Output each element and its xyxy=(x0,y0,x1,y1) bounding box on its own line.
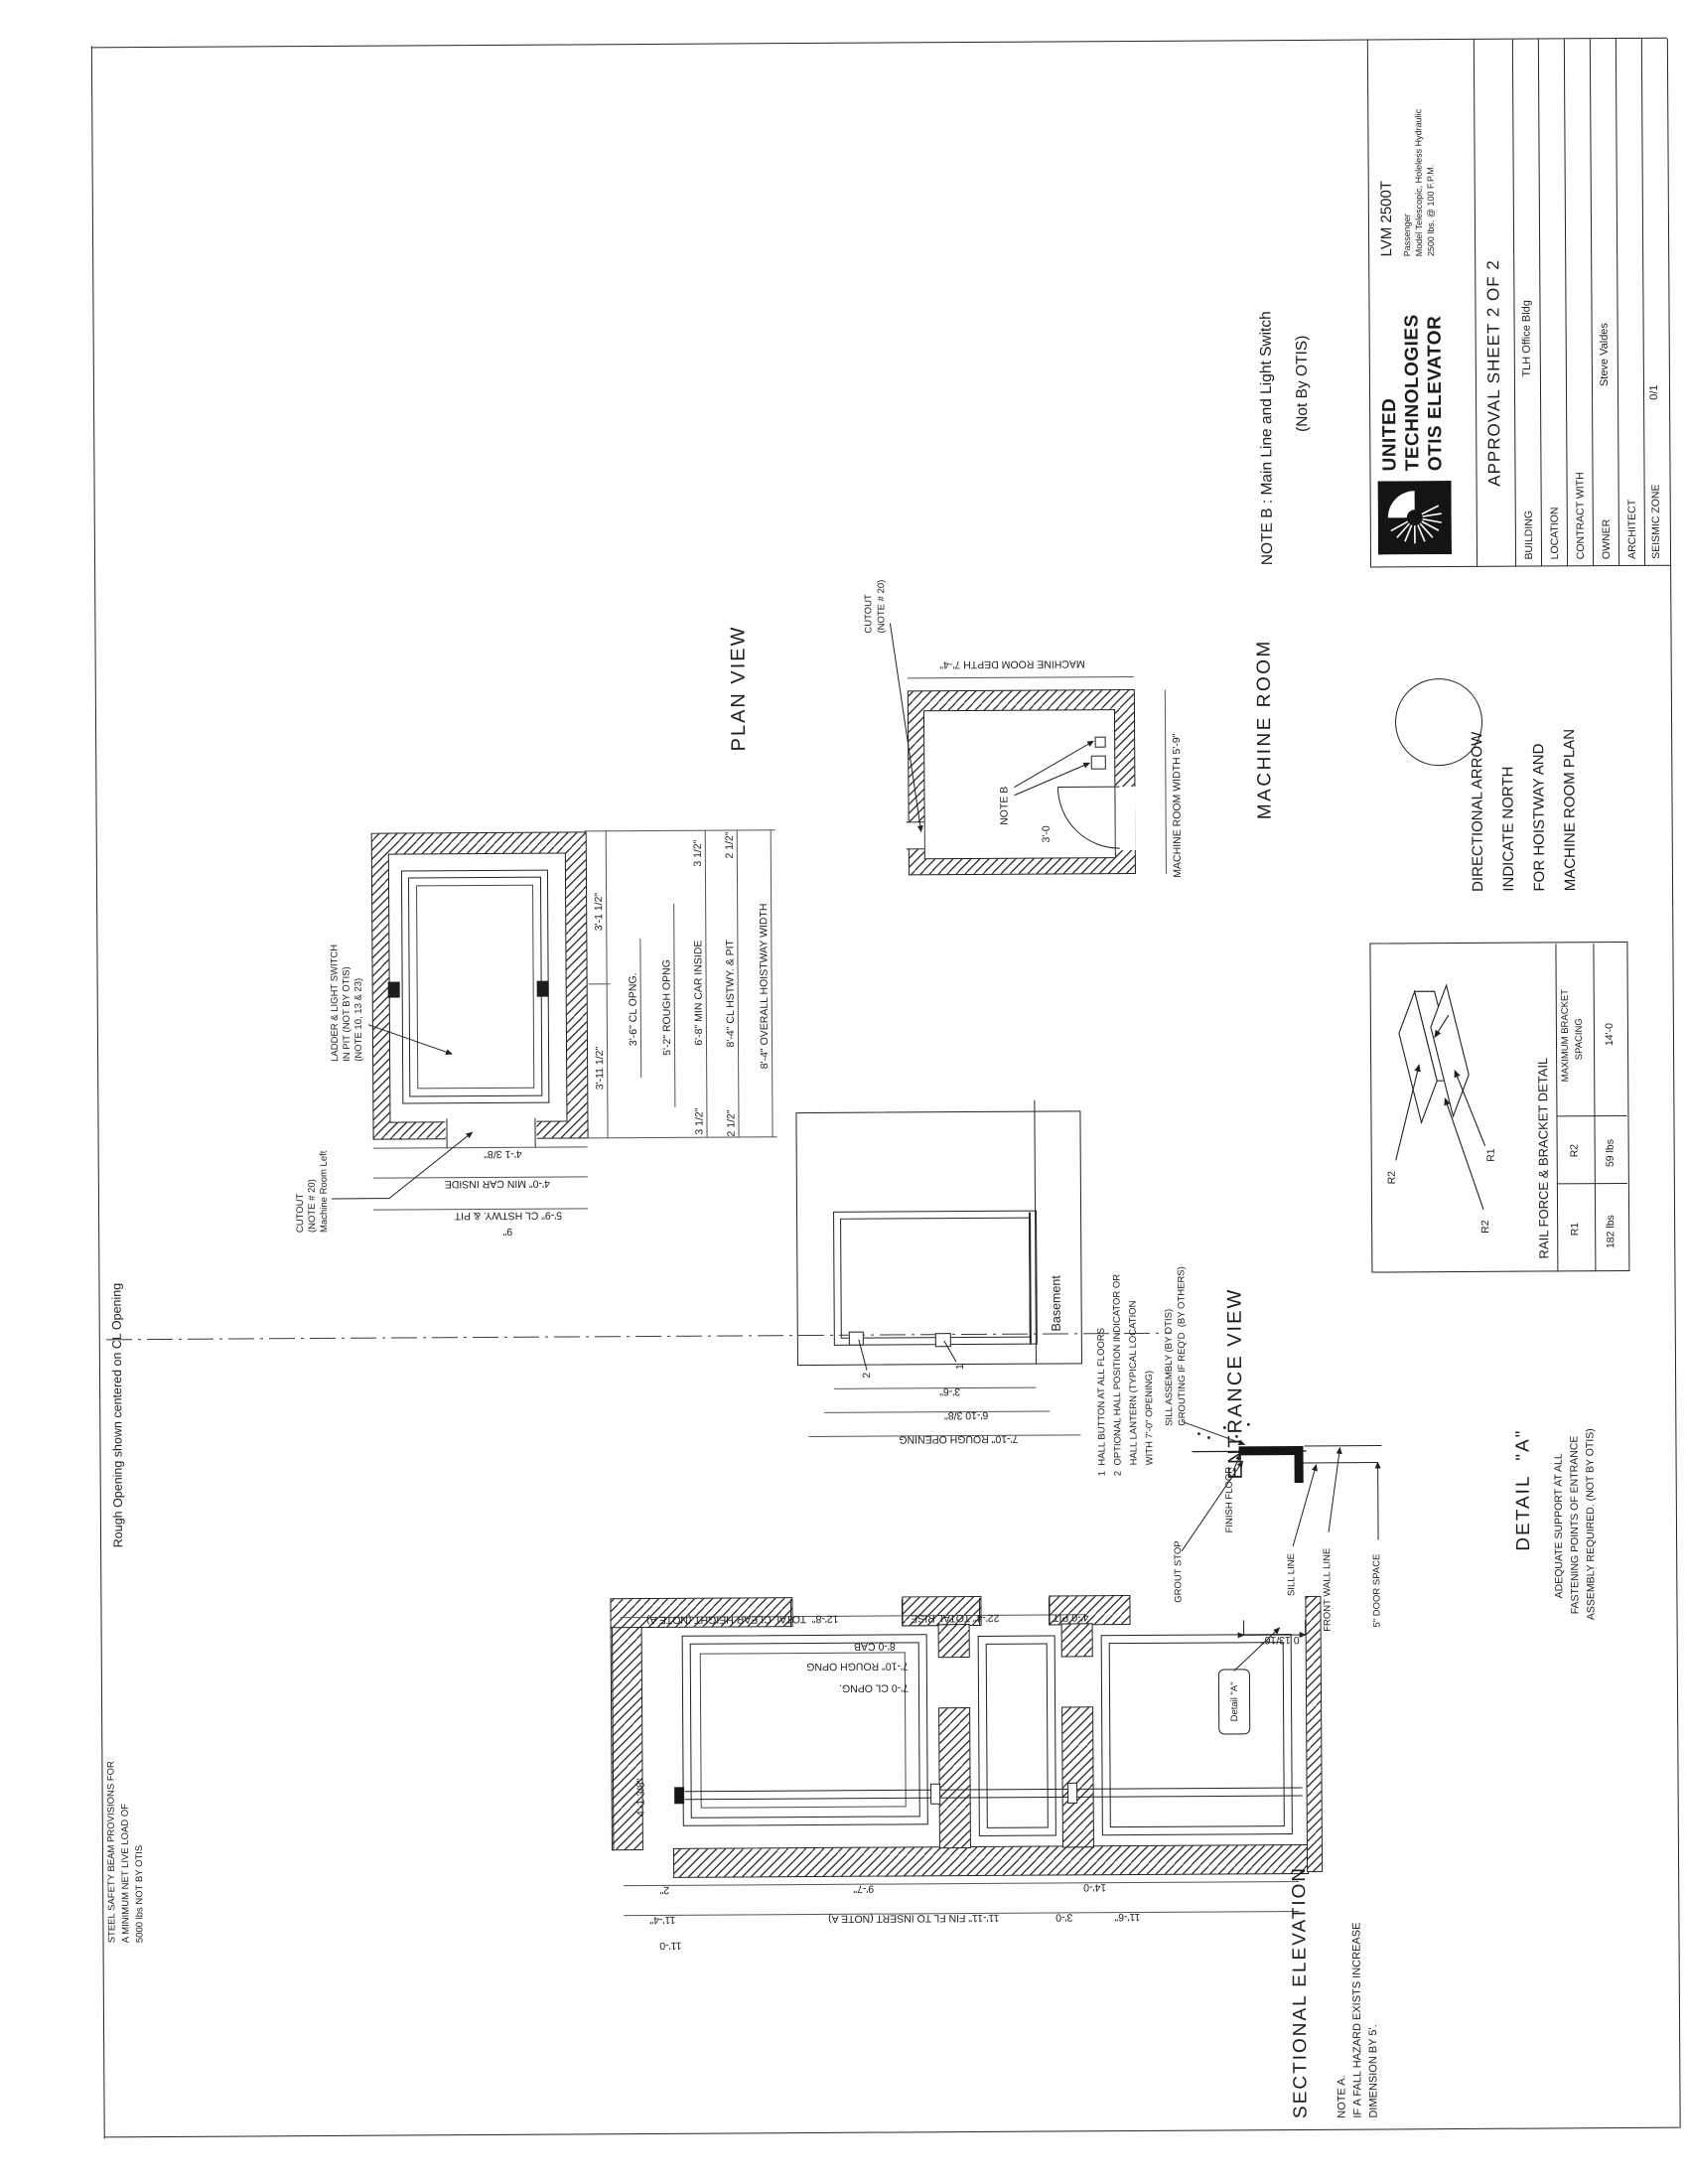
rail-value-spacing: 14'-0 xyxy=(1604,1023,1616,1046)
detail-note-1: ADEQUATE SUPPORT AT ALL xyxy=(1553,1453,1566,1598)
section-ldimline-1 xyxy=(624,1881,1299,1886)
section-dim-clopng: 7'-0 CL OPNG. xyxy=(839,1681,909,1693)
entrance-note-3: HALL LANTERN (TYPICAL LOCATION xyxy=(1129,1300,1141,1476)
detail-sill-line: SILL LINE xyxy=(1287,1553,1298,1596)
plan-cutout-line1: CUTOUT xyxy=(296,1194,307,1233)
direction-note-line1: DIRECTIONAL ARROW xyxy=(1469,732,1486,892)
note-b-line2: (Not By OTIS) xyxy=(1294,336,1312,432)
section-dim-30: 3'-0 xyxy=(1055,1911,1072,1923)
row-owner-label: OWNER xyxy=(1601,519,1613,559)
machine-room-cutout-notch xyxy=(907,821,924,849)
model-name: LVM 2500T xyxy=(1378,181,1396,257)
plan-dim-3-1: 3'-1 1/2" xyxy=(593,893,605,931)
mr-door-dim: 3'-0 xyxy=(1041,825,1053,842)
section-dim-pit: 4'-0 PIT xyxy=(1053,1611,1089,1623)
plan-extline-r xyxy=(585,829,775,831)
section-floor-slab-1-stub xyxy=(938,1624,970,1658)
section-title: SECTIONAL ELEVATION xyxy=(1289,1866,1312,2118)
scanned-drawing-page: STEEL SAFETY BEAM PROVISIONS FOR A MINIM… xyxy=(0,0,1688,2184)
rail-label-r2-left: R2 xyxy=(1479,1220,1491,1234)
rail-header-spacing2: SPACING xyxy=(1575,1018,1586,1060)
section-landing-2-inner xyxy=(986,1644,1049,1828)
section-detail-tag: Detail "A" xyxy=(1218,1669,1250,1734)
mr-depth-dimline xyxy=(908,676,1134,678)
mr-width-dimline xyxy=(1165,690,1167,874)
section-dim-cab: 8'-0 CAB xyxy=(854,1640,896,1652)
plan-rail-bottom xyxy=(537,981,549,997)
section-dim-114: 11'-4" xyxy=(649,1914,675,1926)
section-landing-3-inner xyxy=(1109,1642,1285,1827)
rail-header-r2: R2 xyxy=(1569,1144,1581,1158)
plan-dimline-2 xyxy=(639,939,641,1078)
ladder-note-line3: (NOTE 10, 13 & 23) xyxy=(354,978,365,1062)
sheet-title: APPROVAL SHEET 2 OF 2 xyxy=(1483,259,1504,487)
machine-room-wall xyxy=(908,689,1136,875)
plan-dim-3half-r: 3 1/2" xyxy=(692,840,704,867)
hall-button-box xyxy=(935,1333,951,1347)
direction-note-line4: MACHINE ROOM PLAN xyxy=(1561,729,1579,891)
section-overhead-slab xyxy=(611,1626,643,1850)
plan-extline-l xyxy=(587,1136,777,1138)
section-pit-floor xyxy=(1305,1596,1323,1872)
row-location-label: LOCATION xyxy=(1549,507,1561,559)
otis-logo xyxy=(1378,481,1452,554)
plan-dim-clhstwypit: 5'-9" CL HSTWY. & PIT xyxy=(455,1209,563,1222)
beam-note-line1: STEEL SAFETY BEAM PROVISIONS FOR xyxy=(106,1761,118,1943)
entrance-dimline-2 xyxy=(824,1411,1050,1413)
machine-room-door-gap xyxy=(1115,787,1135,850)
rail-header-spacing1: MAXIMUM BRACKET xyxy=(1561,989,1572,1083)
company-line2: TECHNOLOGIES xyxy=(1402,314,1425,471)
mr-note-b: NOTE B xyxy=(998,787,1010,825)
plan-cutout-line3: Machine Room Left xyxy=(320,1151,331,1233)
titleblock-row-line4 xyxy=(1616,39,1619,566)
section-dim-110: 11'-0 xyxy=(659,1940,681,1952)
entrance-view-title: ENTRANCE VIEW xyxy=(1224,1288,1248,1480)
plan-cab-line xyxy=(416,885,534,1090)
mr-cutout-line2: (NOTE # 20) xyxy=(877,580,888,634)
entrance-note-1: 1 HALL BUTTON AT ALL FLOORS xyxy=(1097,1328,1109,1476)
plan-dim-3half-l: 3 1/2" xyxy=(693,1108,705,1135)
model-sub1: Passenger xyxy=(1402,214,1413,256)
note-b-line1: NOTE B : Main Line and Light Switch xyxy=(1258,311,1277,565)
model-sub2: Model Telescopic, Holeless Hydraulic xyxy=(1413,109,1424,256)
rail-value-r2: 59 lbs xyxy=(1605,1139,1617,1167)
section-floor-slab-2 xyxy=(1061,1706,1094,1847)
rail-detail-title: RAIL FORCE & BRACKET DETAIL xyxy=(1536,1058,1552,1259)
plan-view-title: PLAN VIEW xyxy=(727,625,751,751)
detail-sill-label2: GROUTING IF REQ'D (BY OTHERS) xyxy=(1177,1266,1189,1426)
company-line3: OTIS ELEVATOR xyxy=(1425,316,1448,472)
rail-label-r1: R1 xyxy=(1485,1148,1497,1162)
section-note-a1: NOTE A. xyxy=(1336,2075,1348,2117)
machine-room-title: MACHINE ROOM xyxy=(1254,639,1277,819)
drawing-sheet: STEEL SAFETY BEAM PROVISIONS FOR A MINIM… xyxy=(0,0,1688,2184)
direction-note-line3: FOR HOISTWAY AND xyxy=(1530,744,1548,892)
detail-a-sketch xyxy=(1181,1420,1382,1635)
plan-entrance-gap xyxy=(445,1118,536,1143)
titleblock-line-2 xyxy=(1512,40,1516,567)
row-building-label: BUILDING xyxy=(1523,510,1535,560)
section-dim-roughopng: 7'-10" ROUGH OPNG xyxy=(806,1660,909,1673)
detail-sill-label1: SILL ASSEMBLY (BY OTIS) xyxy=(1165,1309,1177,1426)
titleblock-row-line2 xyxy=(1564,39,1568,566)
entrance-dim-710: 7'-10" ROUGH OPENING xyxy=(899,1433,1018,1446)
titleblock-left-border xyxy=(1370,565,1670,568)
row-seismic-value: 0/1 xyxy=(1648,384,1661,399)
section-dim-116: 11'-6" xyxy=(1114,1911,1140,1923)
rail-detail-box xyxy=(1369,942,1629,1273)
plan-dimline-6 xyxy=(771,829,774,1137)
titleblock-top-border xyxy=(1367,41,1371,568)
section-dim-97: 9'-7" xyxy=(853,1883,874,1895)
plan-sill-line-a xyxy=(446,1118,447,1148)
plan-dim-clhstwy: 8'-4" CL HSTWY. & PIT xyxy=(724,940,737,1048)
plan-extline-m xyxy=(589,983,611,984)
detail-note-3: ASSEMBLY REQUIRED. (NOT BY OTIS) xyxy=(1584,1428,1597,1620)
company-line1: UNITED xyxy=(1379,398,1401,472)
entrance-callout-1: 1 xyxy=(954,1364,966,1370)
section-dim-totalclear: 12'-8" TOTAL CLEAR HEIGHT (NOTE A) xyxy=(646,1613,839,1626)
plan-dimline-5 xyxy=(737,829,740,1137)
entrance-dimline-1 xyxy=(834,1387,1036,1389)
plan-rail-top xyxy=(388,982,400,998)
border-top xyxy=(91,46,105,2138)
model-sub3: 2500 lbs. @ 100 F.P.M. xyxy=(1426,165,1437,257)
plan-dim-2half-l: 2 1/2" xyxy=(725,1109,737,1136)
machine-room-interior xyxy=(923,709,1116,859)
detail-door-space: 5" DOOR SPACE xyxy=(1372,1554,1383,1628)
section-floor-slab-2-stub xyxy=(1061,1623,1093,1657)
mr-width-dim: MACHINE ROOM WIDTH 5'-9" xyxy=(1171,734,1184,878)
plan-dimline-3 xyxy=(673,904,675,1107)
row-building-value: TLH Office Bldg xyxy=(1520,300,1533,377)
plan-dimline-4 xyxy=(705,830,708,1138)
plan-dim-clopng: 3'-6" CL OPNG. xyxy=(628,972,640,1046)
rail-label-r2-top: R2 xyxy=(1386,1171,1398,1185)
section-note-a2: IF A FALL HAZARD EXISTS INCREASE xyxy=(1350,1923,1364,2118)
border-left xyxy=(104,2127,1680,2138)
entrance-floor-label: Basement xyxy=(1049,1275,1063,1331)
hall-lantern-box xyxy=(849,1332,864,1346)
section-note-a3: DIMENSION BY 5'. xyxy=(1367,2024,1380,2117)
section-back-wall xyxy=(673,1844,1309,1878)
detail-note-2: FASTENING POINTS OF ENTRANCE xyxy=(1568,1436,1581,1615)
titleblock-row-line1 xyxy=(1538,39,1542,566)
entrance-note-2: 2 OPTIONAL HALL POSITION INDICATOR OR xyxy=(1112,1274,1124,1476)
plan-cutout-line2: (NOTE # 20) xyxy=(308,1179,319,1233)
section-dim-2in: 2" xyxy=(660,1884,670,1896)
entrance-dim-36: 3'-6" xyxy=(939,1385,960,1397)
border-bottom xyxy=(1667,39,1681,2128)
row-owner-value: Steve Valdes xyxy=(1599,323,1612,386)
plan-dim-2half-r: 2 1/2" xyxy=(724,831,736,858)
plan-sill-line-b xyxy=(534,1118,535,1148)
detail-a-title: DETAIL "A" xyxy=(1512,1428,1535,1550)
section-dim-1111: 11'-11" FIN FL TO INSERT (NOTE A) xyxy=(828,1912,999,1925)
mr-cutout-line1: CUTOUT xyxy=(864,594,875,633)
section-cab xyxy=(700,1652,907,1808)
row-contract-label: CONTRACT WITH xyxy=(1575,472,1588,559)
plan-dim-carinside: 6'-8" MIN CAR INSIDE xyxy=(692,941,705,1046)
titleblock-row-line5 xyxy=(1641,39,1645,566)
titleblock-row-line3 xyxy=(1590,39,1594,566)
row-seismic-label: SEISMIC ZONE xyxy=(1650,484,1663,558)
plan-dim-9in: 9" xyxy=(503,1226,513,1238)
plan-dim-mincar: 4'-0" MIN CAR INSIDE xyxy=(445,1178,550,1191)
section-dim-140: 14'-0 xyxy=(1083,1881,1106,1893)
titleblock-line-1 xyxy=(1474,40,1477,567)
row-architect-label: ARCHITECT xyxy=(1626,500,1638,559)
ladder-note-line2: IN PIT (NOT BY OTIS) xyxy=(343,966,354,1062)
border-right xyxy=(91,38,1667,49)
detail-finish-floor: FINISH FLOOR xyxy=(1225,1467,1236,1533)
plan-dim-overall: 8'-4" OVERALL HOISTWAY WIDTH xyxy=(758,903,771,1069)
detail-front-wall: FRONT WALL LINE xyxy=(1323,1548,1334,1632)
entrance-door-panel xyxy=(840,1218,1031,1339)
rail-header-r1: R1 xyxy=(1569,1223,1581,1237)
section-dim-top: 4'-1 3/8" xyxy=(635,1779,647,1817)
entrance-callout-2: 2 xyxy=(861,1373,873,1379)
plan-vdimline-1 xyxy=(373,1146,588,1148)
entrance-note-4: WITH 7'-0" OPENING) xyxy=(1145,1371,1157,1476)
direction-note-line2: INDICATE NORTH xyxy=(1499,767,1517,892)
section-dim-totalrise: 22'-4" TOTAL RISE xyxy=(911,1612,999,1625)
section-floor-slab-1 xyxy=(938,1707,971,1848)
entrance-dim-610: 6'-10 3/8" xyxy=(944,1409,988,1421)
beam-note-line3: 5000 lbs NOT BY OTIS xyxy=(135,1845,147,1943)
mr-depth-dim: MACHINE ROOM DEPTH 7'-4" xyxy=(939,657,1084,670)
detail-grout-stop: GROUT STOP xyxy=(1174,1540,1185,1603)
plan-dim-3-11: 3'-11 1/2" xyxy=(594,1047,606,1091)
plan-dim-4-1-38: 4'-1 3/8" xyxy=(484,1148,521,1160)
beam-note-line2: A MINIMUM NET LIVE LOAD OF xyxy=(121,1804,133,1943)
rough-opening-note: Rough Opening shown centered on CL Openi… xyxy=(109,1283,125,1547)
ladder-note-line1: LADDER & LIGHT SWITCH xyxy=(330,945,342,1062)
plan-dim-roughopng: 5'-2" ROUGH OPNG xyxy=(660,959,673,1056)
rail-value-r1: 182 lbs xyxy=(1605,1215,1617,1248)
